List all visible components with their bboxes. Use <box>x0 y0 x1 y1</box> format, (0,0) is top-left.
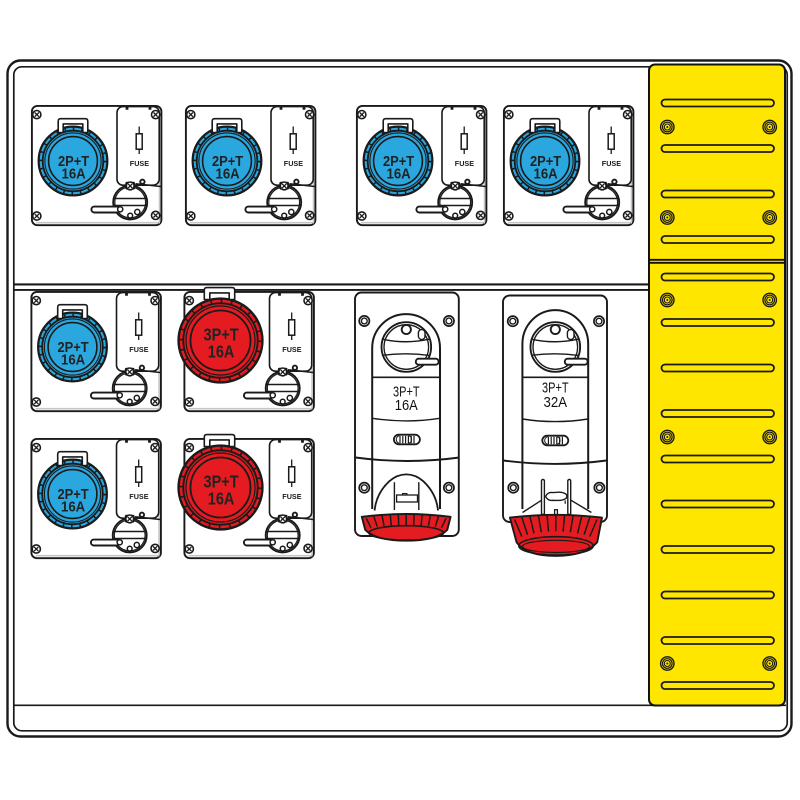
svg-text:16A: 16A <box>395 397 418 414</box>
svg-text:32A: 32A <box>544 394 568 411</box>
